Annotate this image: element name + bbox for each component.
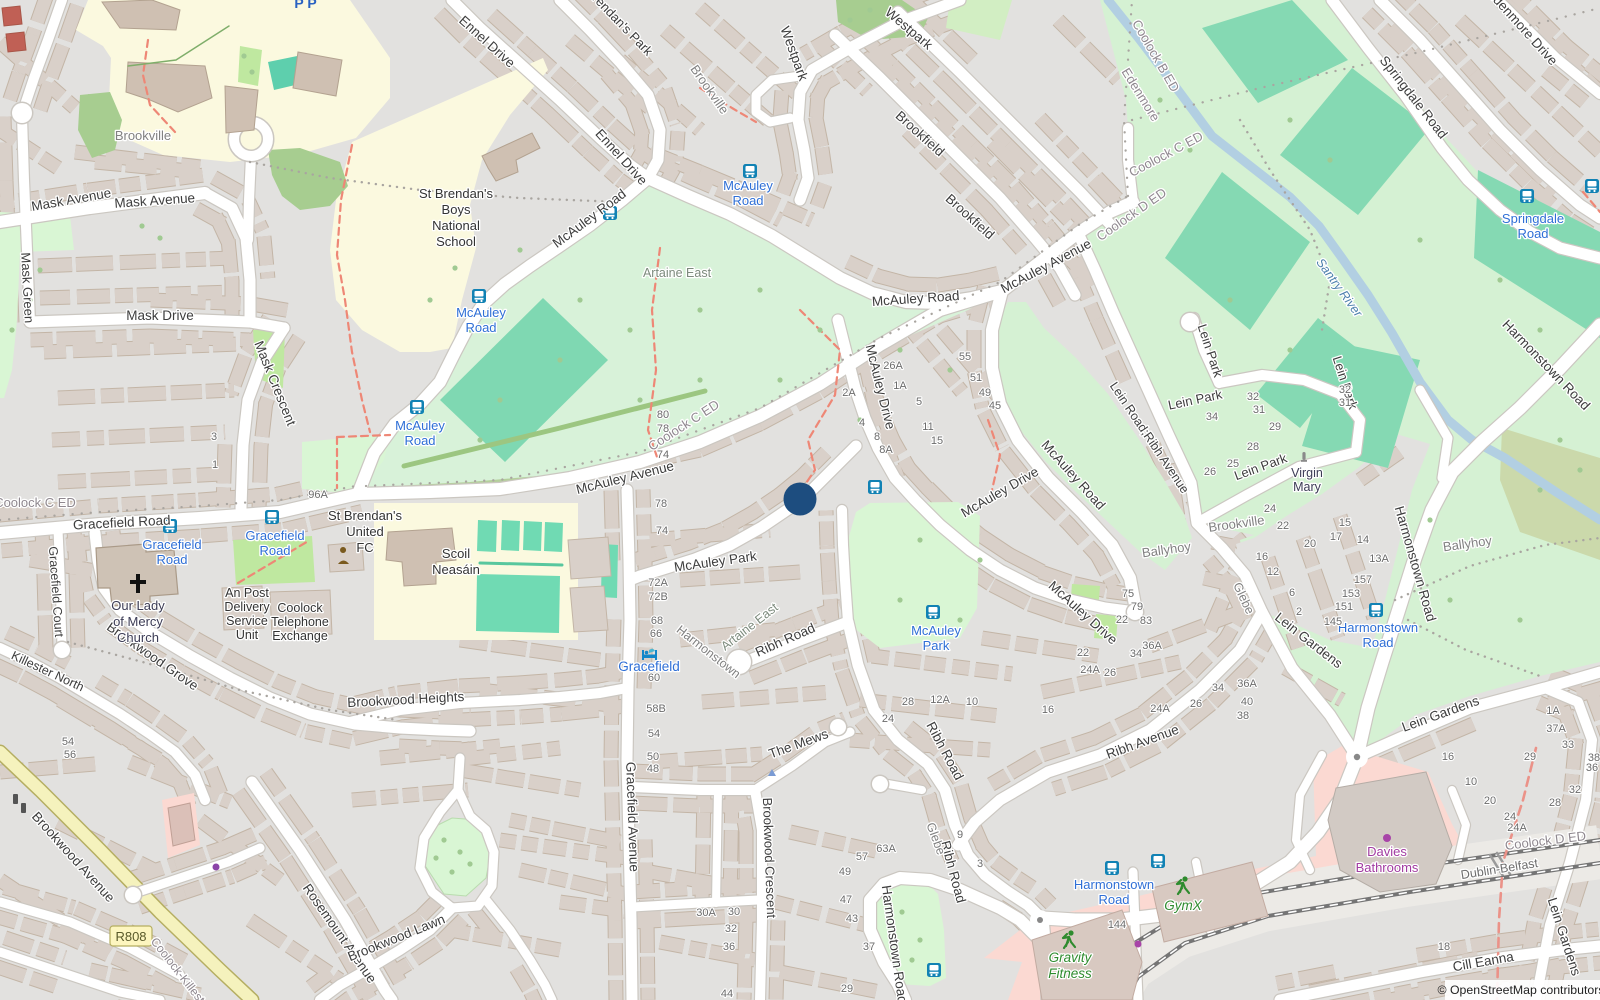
svg-text:47: 47 — [840, 894, 852, 906]
svg-text:51: 51 — [970, 372, 982, 384]
svg-text:Road: Road — [1517, 226, 1548, 241]
svg-text:Delivery: Delivery — [224, 600, 270, 614]
svg-text:Scoil: Scoil — [442, 546, 470, 561]
svg-text:Exchange: Exchange — [272, 629, 328, 643]
svg-text:144: 144 — [1108, 919, 1126, 931]
svg-text:16: 16 — [1042, 704, 1054, 716]
svg-text:Road: Road — [156, 552, 187, 567]
svg-text:20: 20 — [1484, 795, 1496, 807]
svg-text:Road: Road — [1362, 635, 1393, 650]
svg-text:16: 16 — [1442, 751, 1454, 763]
svg-text:10: 10 — [1465, 776, 1477, 788]
svg-text:Gracefield: Gracefield — [142, 537, 201, 552]
svg-text:151: 151 — [1335, 601, 1353, 613]
svg-text:© OpenStreetMap contributors: © OpenStreetMap contributors — [1438, 983, 1600, 997]
svg-text:60: 60 — [648, 672, 660, 684]
svg-text:24A: 24A — [1507, 822, 1527, 834]
svg-text:157: 157 — [1354, 574, 1372, 586]
svg-text:5: 5 — [916, 396, 922, 408]
svg-text:26: 26 — [1104, 667, 1116, 679]
svg-text:34: 34 — [1130, 648, 1142, 660]
svg-text:12A: 12A — [930, 694, 950, 706]
svg-text:School: School — [436, 234, 476, 249]
svg-text:22: 22 — [1077, 647, 1089, 659]
svg-text:29: 29 — [1269, 421, 1281, 433]
svg-text:2: 2 — [1296, 606, 1302, 618]
svg-text:National: National — [432, 218, 480, 233]
svg-text:Road: Road — [732, 193, 763, 208]
svg-text:of Mercy: of Mercy — [113, 614, 163, 629]
svg-text:36: 36 — [1586, 762, 1598, 774]
svg-text:15: 15 — [931, 435, 943, 447]
svg-text:10: 10 — [966, 696, 978, 708]
svg-text:Bathrooms: Bathrooms — [1356, 860, 1419, 875]
svg-text:29: 29 — [1524, 751, 1536, 763]
svg-text:56: 56 — [64, 749, 76, 761]
svg-text:30: 30 — [728, 906, 740, 918]
svg-text:Gracefield: Gracefield — [245, 528, 304, 543]
svg-text:32: 32 — [1339, 384, 1351, 396]
svg-text:Our Lady: Our Lady — [111, 598, 165, 613]
svg-text:24A: 24A — [1150, 703, 1170, 715]
svg-text:McAuley: McAuley — [911, 623, 961, 638]
svg-text:66: 66 — [650, 628, 662, 640]
svg-text:Artaine East: Artaine East — [643, 266, 712, 280]
svg-text:Road: Road — [404, 433, 435, 448]
svg-text:Springdale: Springdale — [1502, 211, 1564, 226]
svg-text:36: 36 — [723, 941, 735, 953]
svg-text:31: 31 — [1339, 397, 1351, 409]
svg-text:48: 48 — [647, 763, 659, 775]
svg-text:2A: 2A — [842, 387, 856, 399]
svg-text:Virgin: Virgin — [1291, 466, 1323, 480]
svg-text:26: 26 — [1204, 466, 1216, 478]
svg-text:3: 3 — [211, 431, 217, 443]
svg-text:54: 54 — [648, 728, 660, 740]
svg-text:St Brendan's: St Brendan's — [328, 508, 403, 523]
svg-text:Service: Service — [226, 614, 268, 628]
svg-text:78: 78 — [655, 498, 667, 510]
svg-text:34: 34 — [1206, 411, 1218, 423]
svg-text:1A: 1A — [893, 380, 907, 392]
svg-text:4: 4 — [859, 417, 865, 429]
svg-text:14: 14 — [1357, 534, 1369, 546]
svg-text:26: 26 — [1190, 698, 1202, 710]
svg-text:33: 33 — [1562, 739, 1574, 751]
svg-text:Fitness: Fitness — [1048, 966, 1092, 981]
svg-text:1A: 1A — [1546, 705, 1560, 717]
svg-text:31: 31 — [1253, 404, 1265, 416]
svg-text:Brookville: Brookville — [115, 128, 171, 143]
svg-text:Road: Road — [465, 320, 496, 335]
svg-text:32: 32 — [1569, 784, 1581, 796]
svg-text:Harmonstown: Harmonstown — [1338, 620, 1418, 635]
svg-text:26A: 26A — [883, 360, 903, 372]
svg-text:Davies: Davies — [1367, 844, 1407, 859]
svg-text:22: 22 — [1277, 520, 1289, 532]
svg-text:United: United — [346, 524, 384, 539]
svg-text:153: 153 — [1342, 588, 1360, 600]
svg-text:9: 9 — [957, 829, 963, 841]
svg-text:P: P — [294, 0, 303, 11]
svg-text:Harmonstown: Harmonstown — [1074, 877, 1154, 892]
svg-text:Road: Road — [1098, 892, 1129, 907]
svg-text:24A: 24A — [1080, 664, 1100, 676]
svg-text:54: 54 — [62, 736, 74, 748]
svg-text:28: 28 — [902, 696, 914, 708]
svg-text:40: 40 — [1241, 696, 1253, 708]
svg-text:Park: Park — [923, 638, 950, 653]
svg-text:11: 11 — [922, 421, 933, 433]
svg-text:96A: 96A — [308, 489, 328, 501]
svg-text:Road: Road — [259, 543, 290, 558]
svg-text:17: 17 — [1330, 531, 1342, 543]
svg-text:McAuley: McAuley — [395, 418, 445, 433]
svg-text:30A: 30A — [696, 907, 716, 919]
svg-text:34: 34 — [1212, 682, 1224, 694]
svg-text:Boys: Boys — [442, 202, 471, 217]
svg-text:22: 22 — [1116, 614, 1128, 626]
svg-text:45: 45 — [989, 400, 1001, 412]
svg-text:49: 49 — [979, 387, 991, 399]
svg-text:58B: 58B — [646, 703, 666, 715]
svg-text:72A: 72A — [648, 577, 668, 589]
svg-text:38: 38 — [1237, 710, 1249, 722]
svg-text:63A: 63A — [876, 843, 896, 855]
svg-text:15: 15 — [1339, 517, 1351, 529]
svg-text:Church: Church — [117, 630, 159, 645]
svg-text:49: 49 — [839, 866, 851, 878]
svg-text:GymX: GymX — [1164, 898, 1202, 913]
svg-text:145: 145 — [1324, 616, 1342, 628]
svg-text:29: 29 — [841, 983, 853, 995]
svg-text:32: 32 — [1247, 391, 1259, 403]
svg-text:An Post: An Post — [225, 586, 269, 600]
svg-text:Neasáin: Neasáin — [432, 562, 480, 577]
svg-text:37: 37 — [863, 941, 875, 953]
svg-text:8A: 8A — [879, 444, 893, 456]
svg-text:Mask Drive: Mask Drive — [126, 308, 194, 323]
svg-text:55: 55 — [959, 351, 971, 363]
svg-text:FC: FC — [356, 540, 373, 555]
svg-text:72B: 72B — [648, 591, 668, 603]
svg-text:50: 50 — [647, 751, 659, 763]
svg-text:44: 44 — [721, 988, 733, 1000]
svg-text:28: 28 — [1247, 441, 1259, 453]
svg-text:McAuley: McAuley — [456, 305, 506, 320]
svg-text:12: 12 — [1267, 566, 1279, 578]
svg-text:57: 57 — [856, 851, 868, 863]
svg-text:43: 43 — [846, 913, 858, 925]
svg-text:St Brendan's: St Brendan's — [419, 186, 494, 201]
svg-text:R808: R808 — [115, 929, 146, 944]
svg-text:80: 80 — [657, 409, 669, 421]
svg-text:20: 20 — [1304, 538, 1316, 550]
svg-text:Unit: Unit — [236, 628, 259, 642]
svg-text:8: 8 — [874, 431, 880, 443]
svg-text:79: 79 — [1131, 601, 1143, 613]
svg-text:32: 32 — [725, 923, 737, 935]
svg-text:36A: 36A — [1142, 640, 1162, 652]
svg-text:37A: 37A — [1546, 723, 1566, 735]
svg-text:36A: 36A — [1237, 678, 1257, 690]
svg-text:P: P — [307, 0, 316, 11]
svg-text:28: 28 — [1549, 797, 1561, 809]
svg-text:Coolock C ED: Coolock C ED — [0, 495, 76, 510]
svg-text:75: 75 — [1122, 588, 1134, 600]
svg-text:24: 24 — [882, 713, 894, 725]
svg-text:Gravity: Gravity — [1049, 950, 1093, 965]
svg-text:1: 1 — [212, 459, 218, 471]
svg-text:74: 74 — [656, 525, 668, 537]
svg-text:74: 74 — [657, 449, 669, 461]
svg-text:Telephone: Telephone — [271, 615, 329, 629]
svg-text:3: 3 — [977, 858, 983, 870]
svg-text:16: 16 — [1256, 551, 1268, 563]
svg-text:Mary: Mary — [1293, 480, 1322, 494]
svg-text:McAuley: McAuley — [723, 178, 773, 193]
svg-text:6: 6 — [1289, 587, 1295, 599]
svg-text:25: 25 — [1227, 458, 1239, 470]
svg-text:68: 68 — [651, 615, 663, 627]
svg-text:78: 78 — [657, 423, 669, 435]
svg-text:24: 24 — [1264, 503, 1276, 515]
svg-text:13A: 13A — [1369, 553, 1389, 565]
svg-text:Coolock: Coolock — [277, 601, 323, 615]
svg-text:83: 83 — [1140, 615, 1152, 627]
svg-text:18: 18 — [1438, 941, 1450, 953]
